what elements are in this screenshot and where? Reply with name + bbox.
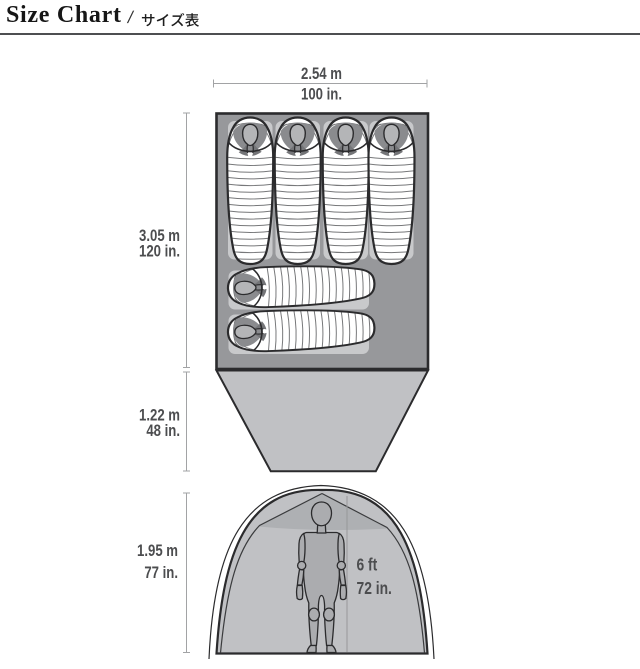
- svg-text:72 in.: 72 in.: [357, 578, 392, 598]
- svg-text:2.54 m: 2.54 m: [301, 64, 342, 83]
- svg-text:120 in.: 120 in.: [139, 242, 180, 261]
- svg-text:48 in.: 48 in.: [146, 421, 180, 440]
- svg-text:100 in.: 100 in.: [301, 85, 342, 104]
- svg-text:6 ft: 6 ft: [357, 555, 378, 575]
- svg-text:77 in.: 77 in.: [144, 563, 178, 582]
- svg-text:1.95 m: 1.95 m: [137, 541, 178, 560]
